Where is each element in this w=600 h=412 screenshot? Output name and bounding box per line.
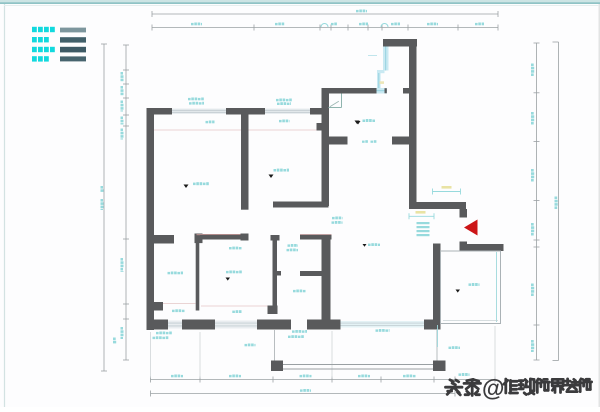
svg-text:@: @ — [482, 375, 504, 401]
